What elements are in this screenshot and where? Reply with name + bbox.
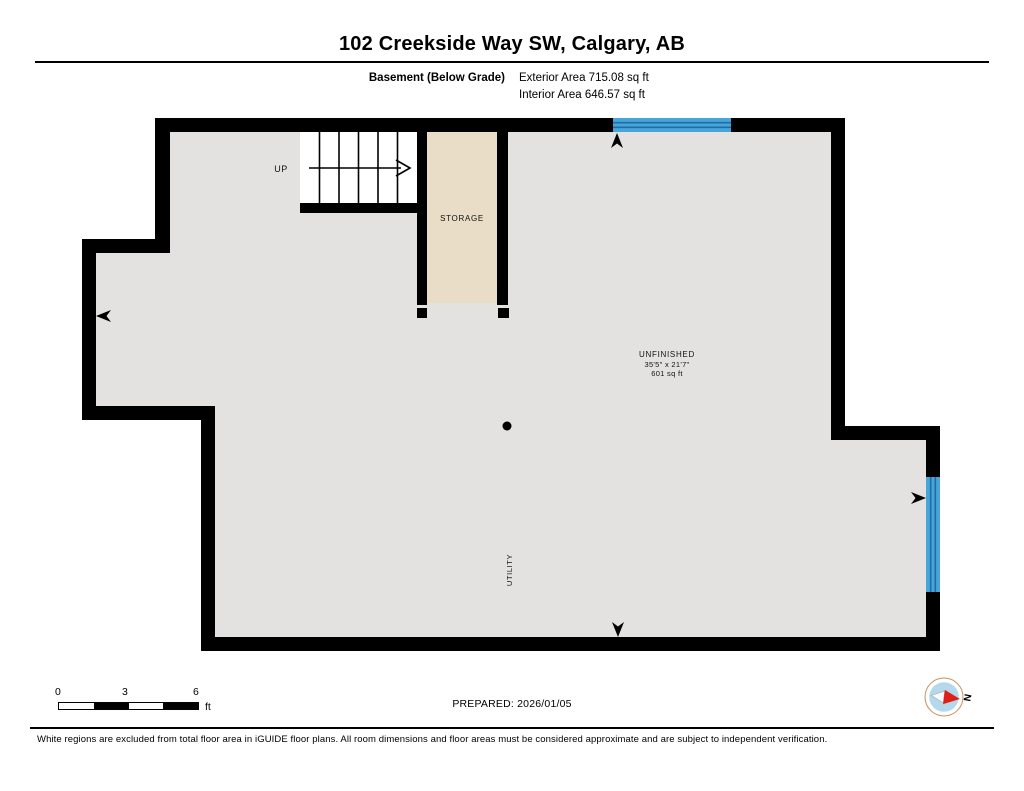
camera-point [503,422,512,431]
storage-wall-left [417,132,427,305]
storage-wall-stub-left [417,308,427,318]
scale-tick-3: 3 [122,686,128,698]
disclaimer-text: White regions are excluded from total fl… [37,734,1004,745]
unfinished-dimensions: 35'5" x 21'7" [644,360,689,369]
floor-plan-page: 102 Creekside Way SW, Calgary, AB Baseme… [0,0,1024,791]
footer-divider [30,727,994,729]
window-top [613,118,731,132]
window-right [926,477,940,592]
storage-label: STORAGE [440,214,484,223]
prepared-date: PREPARED: 2026/01/05 [0,698,1024,710]
storage-wall-right [497,132,508,305]
unfinished-name: UNFINISHED [639,350,695,359]
stair-bottom-wall [300,203,419,213]
scale-tick-6: 6 [193,686,199,698]
scale-tick-0: 0 [55,686,61,698]
utility-label: UTILITY [505,554,514,586]
stairs-up-label: UP [274,164,288,174]
storage-wall-stub-right [498,308,509,318]
unfinished-area: 601 sq ft [651,369,683,378]
floor-plan-drawing: UP STORAGE UNFINISHED 35'5" x 21'7" [0,0,1024,791]
